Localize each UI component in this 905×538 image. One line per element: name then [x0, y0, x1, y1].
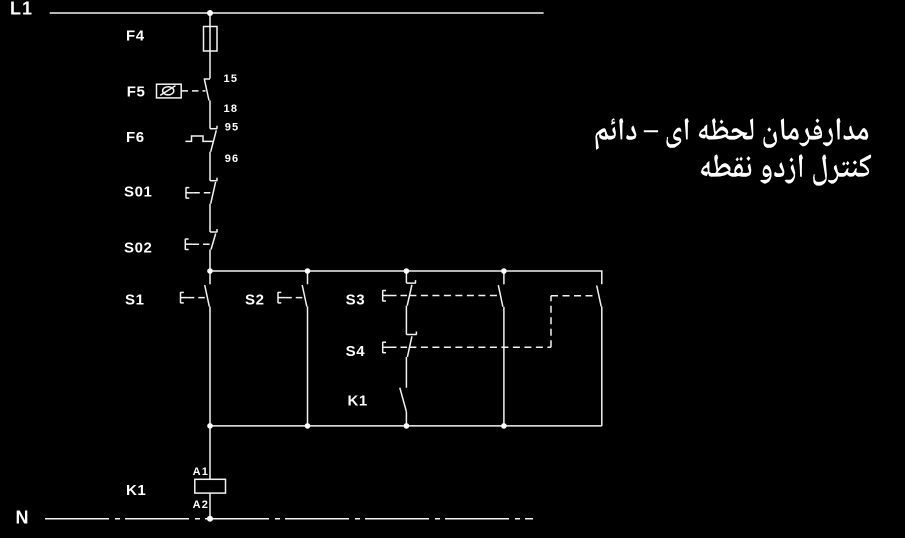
- svg-text:K1: K1: [126, 482, 146, 499]
- svg-text:S2: S2: [245, 292, 265, 309]
- svg-text:S01: S01: [124, 184, 153, 201]
- svg-text:N: N: [16, 508, 29, 528]
- svg-text:A1: A1: [193, 466, 209, 478]
- svg-text:95: 95: [225, 122, 240, 134]
- svg-text:F4: F4: [126, 28, 145, 45]
- svg-text:S02: S02: [124, 240, 153, 257]
- svg-text:A2: A2: [193, 499, 209, 511]
- svg-text:S3: S3: [346, 292, 366, 309]
- svg-text:F5: F5: [127, 84, 146, 101]
- svg-text:96: 96: [225, 153, 240, 165]
- svg-text:K1: K1: [348, 393, 368, 410]
- svg-text:F6: F6: [126, 129, 145, 146]
- svg-text:S4: S4: [346, 343, 366, 360]
- svg-text:L1: L1: [10, 0, 33, 19]
- svg-text:18: 18: [224, 103, 239, 115]
- svg-text:15: 15: [224, 73, 239, 85]
- svg-text:S1: S1: [125, 292, 145, 309]
